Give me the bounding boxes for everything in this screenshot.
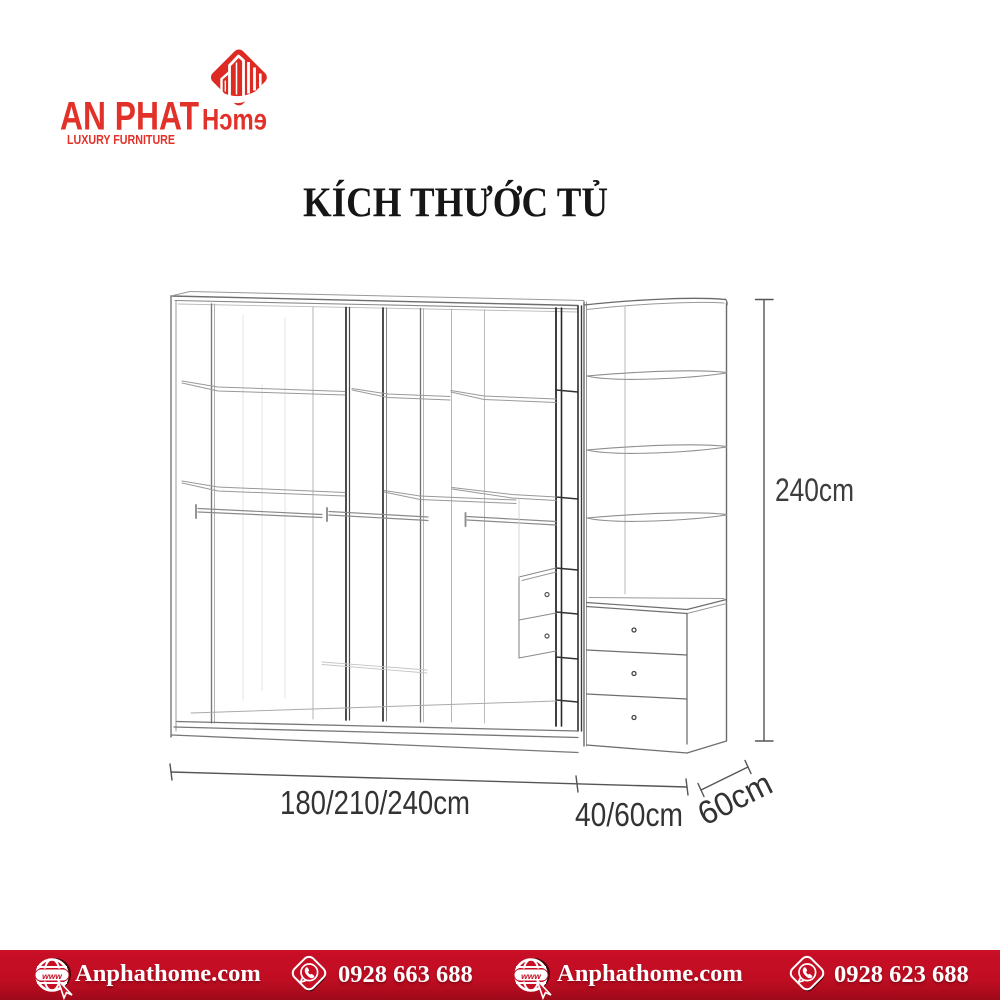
svg-text:www: www — [521, 971, 542, 981]
svg-text:60cm: 60cm — [692, 764, 778, 832]
svg-text:240cm: 240cm — [775, 472, 854, 508]
svg-text:www: www — [42, 971, 63, 981]
svg-text:180/210/240cm: 180/210/240cm — [280, 784, 470, 821]
svg-text:40/60cm: 40/60cm — [575, 796, 683, 833]
